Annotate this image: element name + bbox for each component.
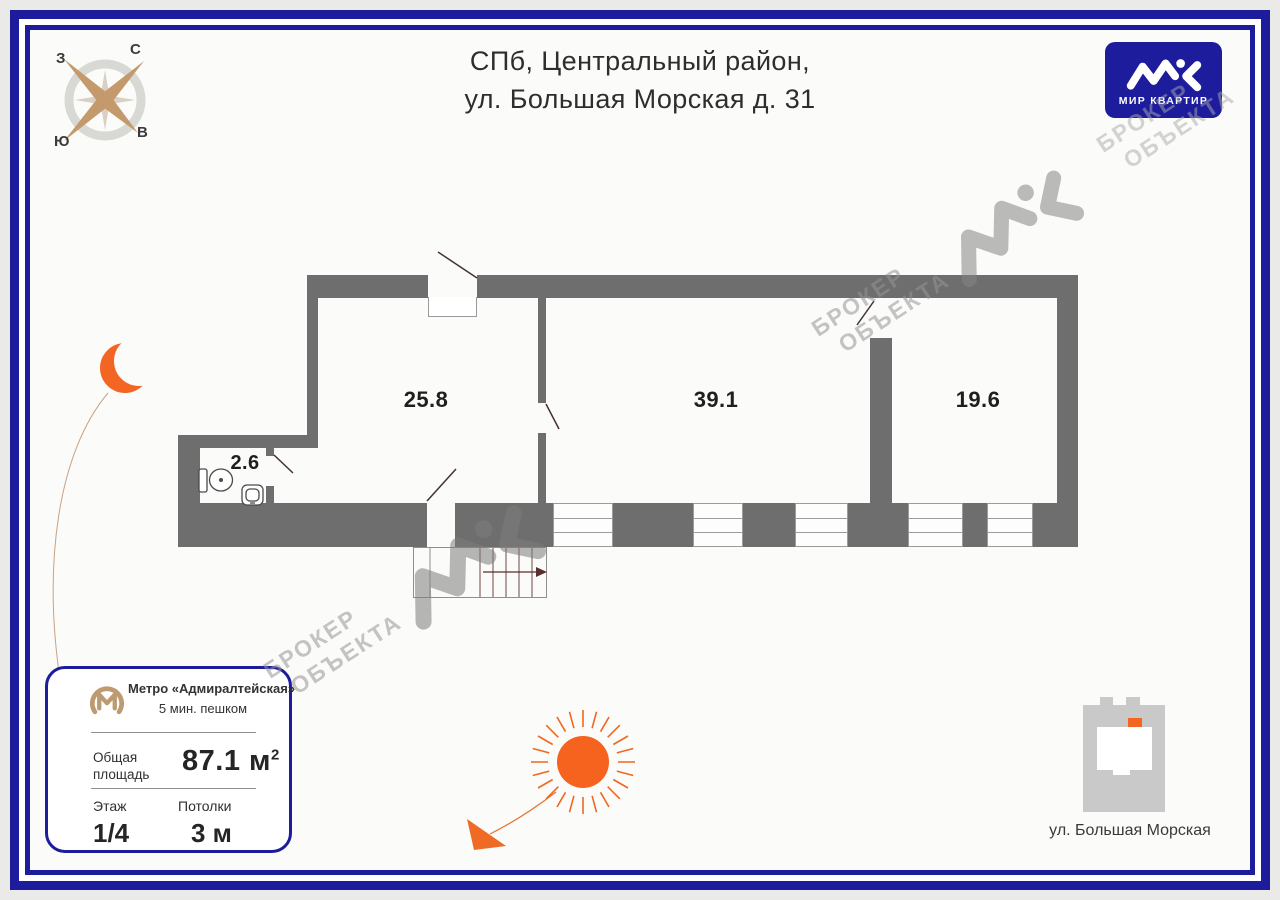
window-3: [795, 503, 848, 547]
ceiling-value: 3 м: [191, 818, 232, 849]
wall-partition2: [870, 338, 892, 503]
room-area-label: 19.6: [948, 387, 1008, 413]
metro-station-label: Метро «Адмиралтейская»: [128, 681, 295, 696]
wall-bottom-pier-6: [1033, 503, 1078, 547]
metro-logo-icon: [88, 679, 126, 717]
total-area-value: 87.1 м2: [182, 745, 280, 778]
wall-left-vertical: [307, 275, 318, 448]
street-label: ул. Большая Морская: [1035, 822, 1225, 840]
wall-bottom-pier-2: [613, 503, 693, 547]
wall-bathroom-top: [178, 435, 318, 448]
window-2: [693, 503, 743, 547]
wall-bottom-pier-3: [743, 503, 795, 547]
wall-bathroom-stub: [266, 486, 274, 503]
floor-value: 1/4: [93, 818, 129, 849]
entrance-vestibule: [428, 297, 477, 317]
wall-right: [1057, 298, 1078, 503]
wall-bottom-pier-5: [963, 503, 987, 547]
compass-south-label: Ю: [54, 133, 69, 150]
wall-partition1-lower: [538, 433, 546, 503]
compass-west-label: З: [56, 50, 65, 67]
compass-north-label: С: [130, 41, 141, 58]
card-divider: [91, 732, 256, 733]
floor-label: Этаж: [93, 798, 126, 814]
wall-bottom-left: [178, 503, 427, 547]
room-area-label: 25.8: [396, 387, 456, 413]
wall-top-left: [307, 275, 428, 298]
wall-bottom-pier-4: [848, 503, 908, 547]
ceiling-label: Потолки: [178, 798, 231, 814]
room-area-label: 39.1: [686, 387, 746, 413]
total-area-label: Общая площадь: [93, 749, 163, 783]
window-1: [553, 503, 613, 547]
building-minimap-icon: [1075, 690, 1175, 820]
page-title-line2: ул. Большая Морская д. 31: [0, 84, 1280, 115]
wall-partition1-upper: [538, 298, 546, 403]
sun-icon: [523, 702, 643, 822]
floorplan-poster: СПб, Центральный район, ул. Большая Морс…: [0, 0, 1280, 900]
metro-walk-label: 5 мин. пешком: [128, 701, 278, 716]
wall-bathroom-left: [178, 448, 200, 504]
bathroom-area-label: 2.6: [215, 452, 275, 475]
moon-icon: [95, 333, 165, 403]
card-divider: [91, 788, 256, 789]
window-4: [908, 503, 963, 547]
window-5: [987, 503, 1033, 547]
compass-east-label: В: [137, 124, 148, 141]
apartment-location-marker: [1128, 718, 1142, 727]
property-info-card: Метро «Адмиралтейская» 5 мин. пешком Общ…: [45, 666, 292, 853]
page-title-line1: СПб, Центральный район,: [0, 46, 1280, 77]
